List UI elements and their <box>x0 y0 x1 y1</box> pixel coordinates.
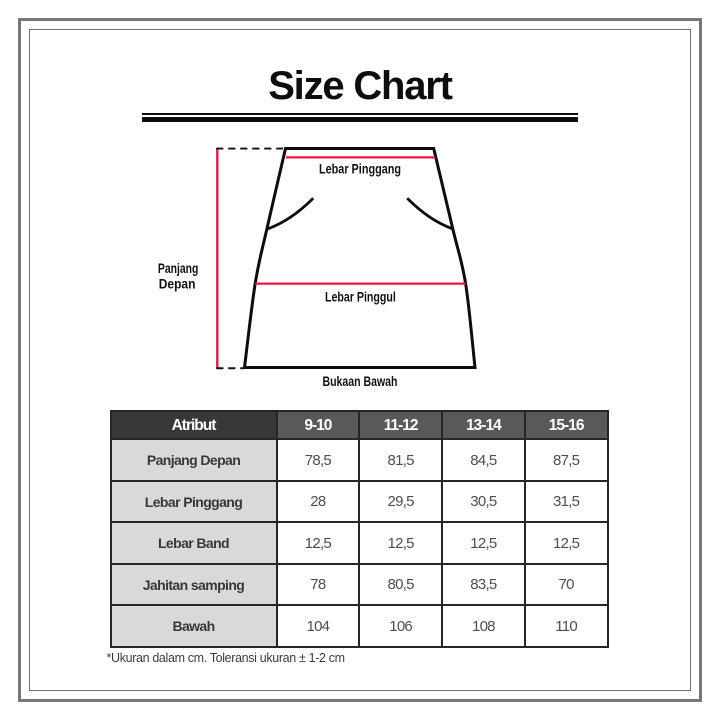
svg-text:Depan: Depan <box>159 276 196 291</box>
svg-text:Lebar Pinggang: Lebar Pinggang <box>319 161 401 176</box>
svg-text:Panjang: Panjang <box>158 261 198 276</box>
svg-text:Bukaan Bawah: Bukaan Bawah <box>323 374 398 389</box>
svg-text:Lebar Pinggul: Lebar Pinggul <box>325 290 396 305</box>
